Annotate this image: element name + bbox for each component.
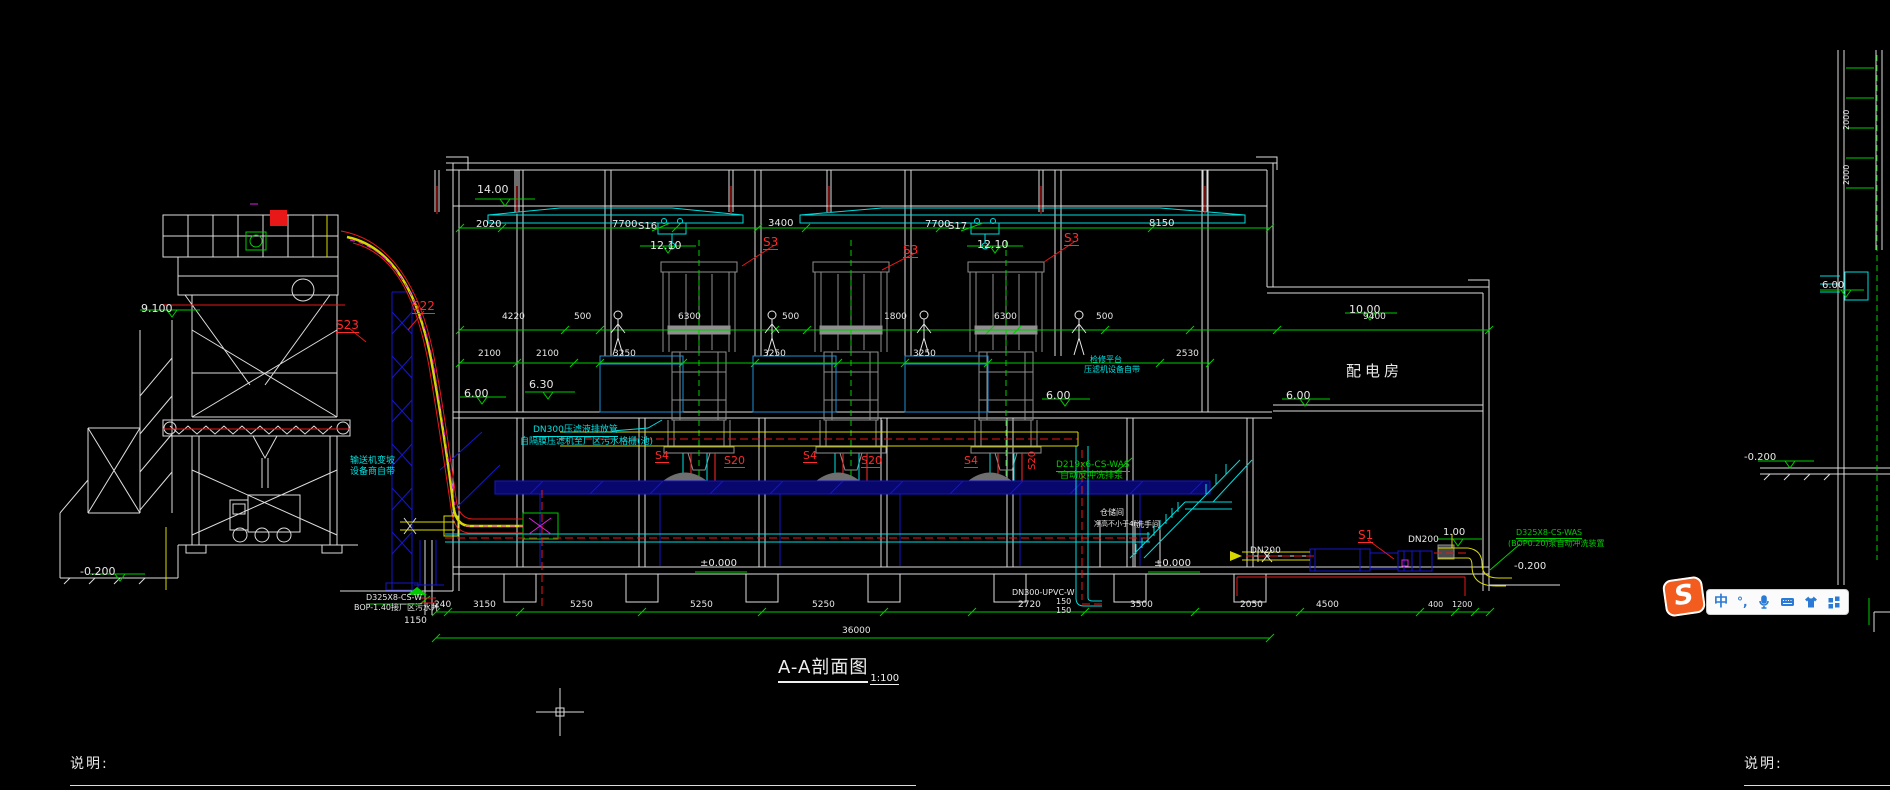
menu-grid-icon[interactable] (1827, 595, 1841, 609)
notes-left-label: 说明: (70, 753, 109, 773)
mic-icon[interactable] (1757, 595, 1771, 609)
ime-toolbar[interactable]: S 中 °, (1664, 578, 1849, 615)
sogou-logo-icon[interactable]: S (1662, 575, 1707, 617)
notes-right-rule (1744, 785, 1890, 786)
notes-right-label: 说明: (1744, 753, 1783, 773)
section-drawing (0, 0, 1890, 790)
keyboard-icon[interactable] (1780, 595, 1795, 609)
chinese-mode-icon[interactable]: 中 (1714, 595, 1728, 609)
drawing-title: A-A剖面图1:100 (778, 653, 899, 685)
ime-toolbar-bar[interactable]: 中 °, (1706, 589, 1849, 615)
punctuation-icon[interactable]: °, (1737, 596, 1748, 608)
power-room-label: 配电房 (1346, 360, 1403, 381)
notes-left-rule (70, 785, 916, 786)
cad-viewport: 9.100S23S22输送机变坡设备商自带-0.200D325X8-CS-WBO… (0, 0, 1890, 790)
skin-icon[interactable] (1804, 595, 1818, 609)
drawing-title-text: A-A剖面图 (778, 653, 868, 683)
cad-crosshair-cursor (536, 688, 584, 736)
drawing-scale: 1:100 (870, 673, 899, 685)
